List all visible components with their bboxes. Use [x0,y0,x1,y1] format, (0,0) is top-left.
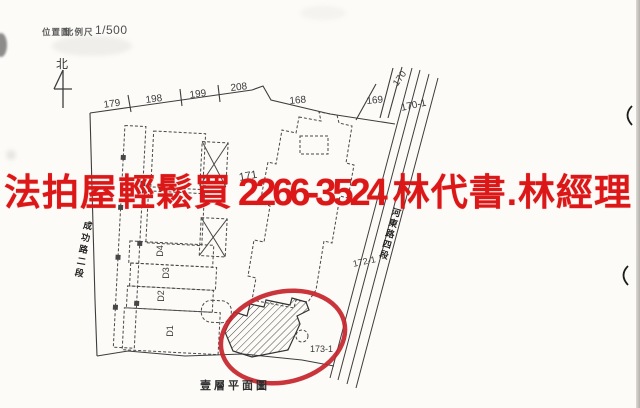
parcel-label-199: 199 [189,88,207,101]
ad-overlay-phone: 2266-3524 [238,172,384,214]
parcel-label-173-1: 173-1 [310,344,333,354]
unit-label-d1: D1 [165,325,175,337]
unit-label-d2: D2 [156,290,166,302]
ad-overlay-suffix: 林代書.林經理 [393,172,632,213]
parcel-label-179: 179 [103,98,121,111]
scale-label: 比例尺 [65,26,94,38]
north-label: 北 [56,55,68,72]
scale-value: 1/500 [95,23,128,37]
ad-overlay-text: 法拍屋輕鬆買2266-3524林代書.林經理 [4,170,640,218]
scanned-site-plan-page: 位置圖 比例尺 1/500 北 179 198 199 208 168 169 … [0,0,640,408]
parcel-label-169: 169 [366,95,384,107]
parcel-label-198: 198 [145,93,163,106]
north-arrow-icon [54,70,72,108]
parcel-label-168: 168 [289,95,307,107]
unit-label-d4: D4 [155,245,165,257]
unit-label-d3: D3 [161,267,171,279]
parcel-label-208: 208 [230,81,248,94]
building-cluster-left [111,125,241,355]
floor-plan-caption: 壹層平面圖 [200,377,270,393]
building-subject-hatched [225,298,309,357]
ad-overlay-prefix: 法拍屋輕鬆買 [4,172,232,213]
